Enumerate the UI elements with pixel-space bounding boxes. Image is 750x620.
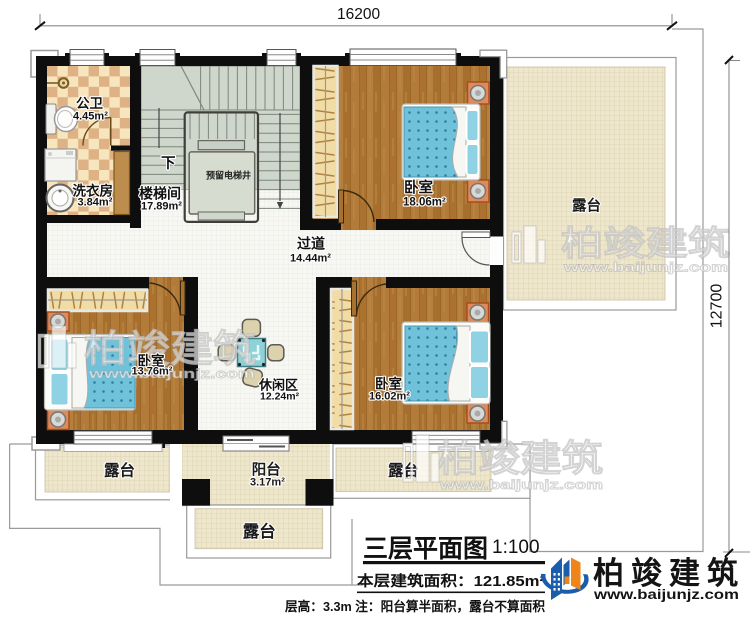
svg-text:楼梯间: 楼梯间 <box>139 186 181 202</box>
svg-text:露台: 露台 <box>104 461 135 480</box>
svg-text:柏竣建筑: 柏竣建筑 <box>561 224 730 263</box>
svg-text:卧室: 卧室 <box>375 376 402 392</box>
svg-text:4.45m²: 4.45m² <box>73 111 108 123</box>
svg-text:www.baijunjz.com: www.baijunjz.com <box>438 478 603 492</box>
svg-text:预留电梯井: 预留电梯井 <box>206 170 251 181</box>
svg-text:17.89m²: 17.89m² <box>141 201 182 213</box>
svg-text:16200: 16200 <box>337 6 380 23</box>
svg-text:1:100: 1:100 <box>492 537 540 558</box>
svg-text:公卫: 公卫 <box>76 96 103 111</box>
svg-text:www.baijunjz.com: www.baijunjz.com <box>593 587 739 602</box>
svg-text:三层平面图: 三层平面图 <box>363 535 488 563</box>
svg-text:12700: 12700 <box>709 284 726 329</box>
svg-text:过道: 过道 <box>297 236 325 252</box>
svg-text:露台: 露台 <box>243 521 276 541</box>
svg-text:12.24m²: 12.24m² <box>260 391 300 403</box>
svg-text:3.84m²: 3.84m² <box>78 197 113 209</box>
svg-text:18.06m²: 18.06m² <box>403 197 446 209</box>
svg-text:本层建筑面积：121.85m²: 本层建筑面积：121.85m² <box>357 572 545 590</box>
svg-text:层高：3.3m 注：阳台算半面积，露台不算面积: 层高：3.3m 注：阳台算半面积，露台不算面积 <box>285 599 545 614</box>
svg-text:www.baijunjz.com: www.baijunjz.com <box>563 260 728 275</box>
svg-text:柏竣建筑: 柏竣建筑 <box>437 437 603 479</box>
svg-text:下: 下 <box>161 155 176 172</box>
svg-text:14.44m²: 14.44m² <box>290 253 331 265</box>
svg-text:露台: 露台 <box>572 197 601 215</box>
svg-text:3.17m²: 3.17m² <box>250 477 285 489</box>
svg-text:13.76m²: 13.76m² <box>132 366 173 378</box>
svg-text:16.02m²: 16.02m² <box>369 391 410 403</box>
svg-text:卧室: 卧室 <box>404 179 433 197</box>
